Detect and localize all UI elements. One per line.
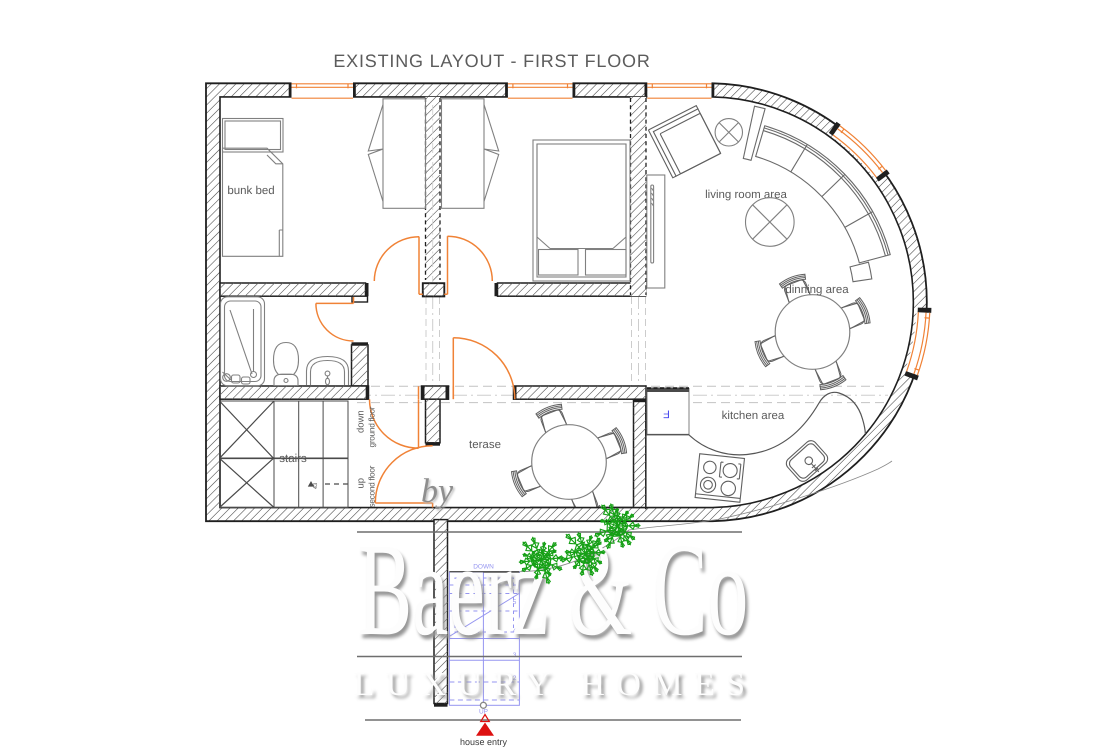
svg-text:house entry: house entry bbox=[460, 737, 508, 747]
